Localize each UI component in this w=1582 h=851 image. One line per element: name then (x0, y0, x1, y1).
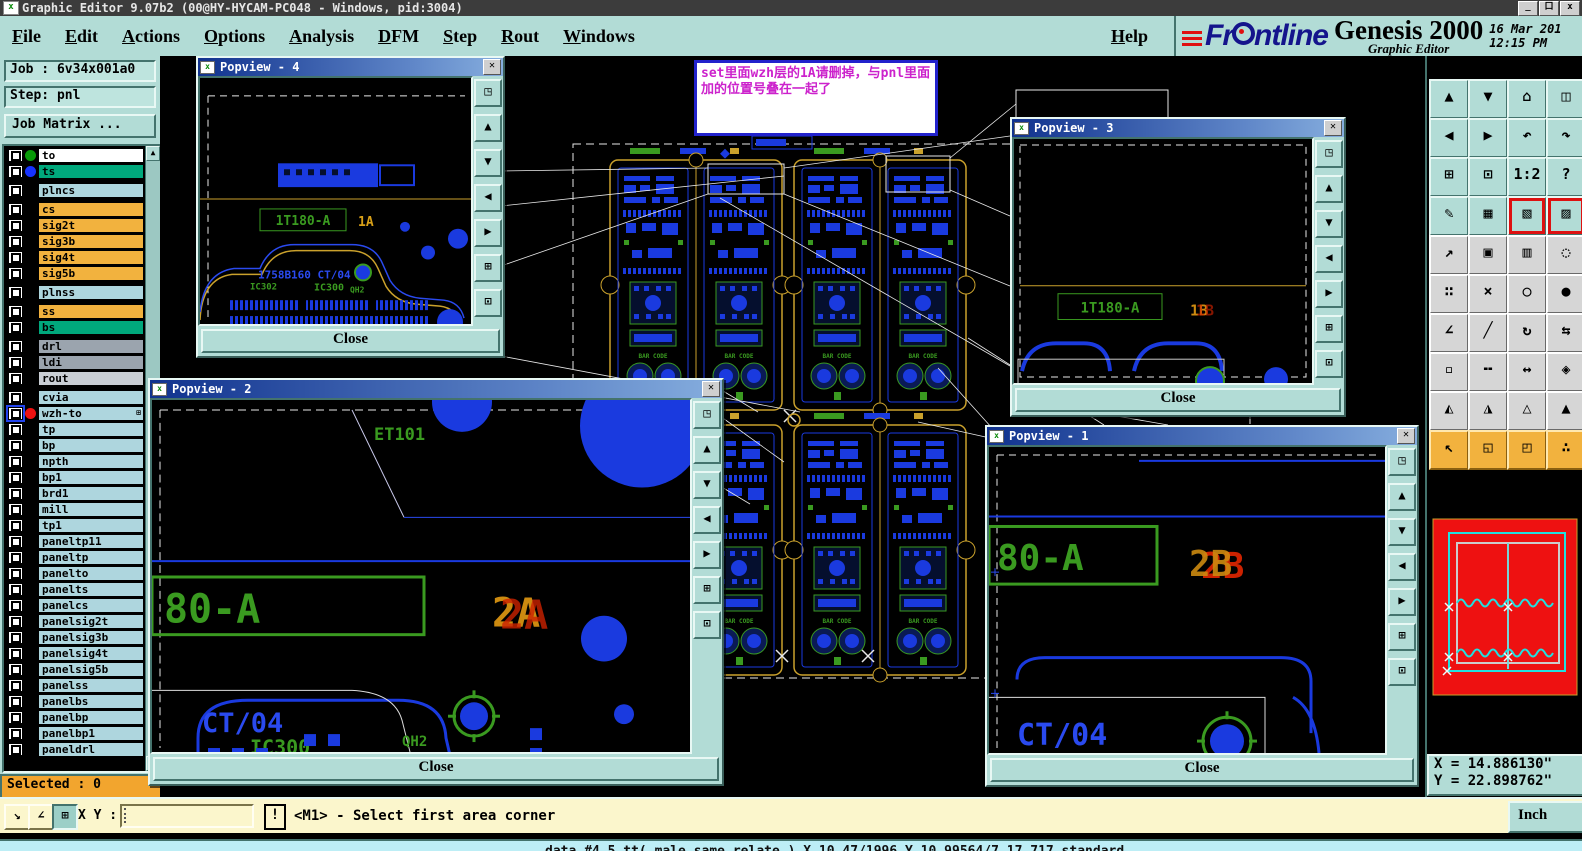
layer-name: panelsig2t (38, 614, 144, 629)
layer-row-tp[interactable]: tp (6, 422, 144, 436)
layer-checkbox[interactable] (8, 439, 23, 452)
layer-name: panelsig4t (38, 646, 144, 661)
tool-pad-mode-button[interactable]: ▫ (1429, 352, 1469, 392)
layer-checkbox[interactable] (8, 423, 23, 436)
popview-3-window: x Popview - 3 ✕ 1T180-A 1B 1B (1010, 117, 1346, 417)
popview-2-window: x Popview - 2 ✕ ET101 (148, 378, 724, 786)
units-selector[interactable]: Inch (1508, 801, 1582, 833)
tool-move-up-b-button[interactable]: ◮ (1468, 391, 1508, 431)
menu-options[interactable]: Options (204, 26, 265, 47)
layer-color-dot (25, 520, 36, 531)
layer-name: panelss (38, 678, 144, 693)
center-view-icon[interactable]: ⊡ (1388, 658, 1416, 686)
zoom-in-icon[interactable]: ▲ (1315, 175, 1343, 203)
popview-3-title: Popview - 3 (1034, 121, 1113, 135)
layer-color-dot (25, 287, 36, 298)
layer-color-dot (25, 204, 36, 215)
popout-icon[interactable]: ◳ (1315, 140, 1343, 168)
measure-angle-icon[interactable]: ∠ (28, 804, 54, 830)
bottom-toolbar: ↘ ∠ ⊞ X Y : ! <M1> - Select first area c… (0, 797, 1582, 833)
popout-icon[interactable]: ◳ (1388, 448, 1416, 476)
tool-gap-measure-button[interactable]: ↔ (1507, 352, 1547, 392)
menu-windows[interactable]: Windows (563, 26, 635, 47)
layer-color-dot (25, 536, 36, 547)
popview-1-close-icon[interactable]: ✕ (1397, 428, 1415, 444)
popview-icon: x (989, 430, 1004, 443)
layer-checkbox[interactable] (8, 487, 23, 500)
layer-row-mill[interactable]: mill (6, 502, 144, 516)
close-window-button[interactable]: x (1560, 1, 1580, 16)
layer-name: bs (38, 320, 144, 335)
window-title: Graphic Editor 9.07b2 (00@HY-HYCAM-PC048… (22, 1, 463, 15)
popout-icon[interactable]: ◳ (693, 401, 721, 429)
menu-file[interactable]: File (12, 26, 41, 47)
right-tool-panel: ▲▼⌂◫◀▶↶↷⊞⊡1:2?✎▦▧▨↗▣▥◌∷×○●∠╱↻⇆▫╍↔◈◭◮△▲↖◱… (1425, 56, 1582, 797)
datetime: 16 Mar 201 12:15 PM (1489, 22, 1561, 50)
frontline-logo: Frntline (1205, 19, 1328, 53)
layer-checkbox[interactable] (8, 711, 23, 724)
coord-y: Y = 22.898762" (1434, 773, 1582, 790)
layer-name: to (38, 148, 144, 163)
menu-help[interactable]: Help (1111, 26, 1148, 47)
popview-2-title: Popview - 2 (172, 382, 251, 396)
layer-name: panelbp (38, 710, 144, 725)
layer-row-panelbs[interactable]: panelbs (6, 694, 144, 708)
zoom-in-icon[interactable]: ▲ (474, 114, 502, 142)
popview-4-title: Popview - 4 (220, 60, 299, 74)
layer-row-ldi[interactable]: ldi (6, 355, 144, 369)
layer-name: brd1 (38, 486, 144, 501)
popview-1-titlebar[interactable]: x Popview - 1 ✕ (987, 427, 1417, 445)
layer-name: tp1 (38, 518, 144, 533)
zoom-out-icon[interactable]: ▼ (1388, 518, 1416, 546)
popview-icon: x (152, 383, 167, 396)
layer-color-dot (25, 712, 36, 723)
tool-move-up-a-button[interactable]: ◭ (1429, 391, 1469, 431)
layer-color-dot (25, 616, 36, 627)
popout-icon[interactable]: ◳ (474, 79, 502, 107)
layer-row-ss[interactable]: ss (6, 304, 144, 318)
tool-previous-view-button[interactable]: ↶ (1507, 118, 1547, 158)
tool-next-view-button[interactable]: ↷ (1546, 118, 1582, 158)
layer-checkbox[interactable] (8, 219, 23, 232)
tool-select-area-button[interactable]: ◌ (1546, 235, 1582, 275)
tool-net-nodes-button[interactable]: ∷ (1429, 274, 1469, 314)
layer-color-dot (25, 306, 36, 317)
popview-icon: x (1014, 122, 1029, 135)
layer-panel: totsplncscssig2tsig3bsig4tsig5bplnssssbs… (2, 144, 162, 773)
pv4-ic300-text: IC300 (314, 282, 344, 293)
popview-1-window: x Popview - 1 ✕ 80-A 2B 2B (985, 425, 1419, 787)
fit-view-icon[interactable]: ⊞ (1315, 315, 1343, 343)
layer-row-brd1[interactable]: brd1 (6, 486, 144, 500)
menu-rout[interactable]: Rout (501, 26, 539, 47)
layer-color-dot (25, 680, 36, 691)
layer-row-panelbp[interactable]: panelbp (6, 710, 144, 724)
pv2-et-text: ET101 (374, 424, 425, 444)
measure-distance-icon[interactable]: ↘ (4, 804, 30, 830)
menu-analysis[interactable]: Analysis (289, 26, 354, 47)
tool-grid-toggle-button[interactable]: ▦ (1468, 196, 1508, 236)
tool-layer-stoplight-button[interactable]: ▧ (1507, 196, 1547, 236)
layer-checkbox[interactable] (8, 305, 23, 318)
zoom-out-icon[interactable]: ▼ (693, 471, 721, 499)
pv4-ref-text: 1T180-A (276, 214, 331, 229)
tool-pan-right-button[interactable]: ▶ (1468, 118, 1508, 158)
center-view-icon[interactable]: ⊡ (693, 611, 721, 639)
job-matrix-button[interactable]: Job Matrix ... (4, 114, 156, 138)
layer-color-dot (25, 373, 36, 384)
layer-name: panelsig5b (38, 662, 144, 677)
pan-left-icon[interactable]: ◀ (693, 506, 721, 534)
layer-row-panelsig2t[interactable]: panelsig2t (6, 614, 144, 628)
popview-4-window: x Popview - 4 ✕ (196, 56, 505, 358)
layer-checkbox[interactable] (8, 647, 23, 660)
brand-panel: Frntline Genesis 2000 Graphic Editor 16 … (1174, 16, 1582, 56)
layer-row-tp1[interactable]: tp1 (6, 518, 144, 532)
prompt-message: <M1> - Select first area corner (294, 808, 555, 824)
layer-color-dot (25, 728, 36, 739)
layer-checkbox[interactable] (8, 286, 23, 299)
layer-checkbox[interactable] (8, 251, 23, 264)
layer-name: paneldrl (38, 742, 144, 757)
tool-copy-frame-button[interactable]: ▣ (1468, 235, 1508, 275)
center-view-icon[interactable]: ⊡ (474, 289, 502, 317)
tool-copy-point-button[interactable]: ● (1546, 274, 1582, 314)
popview-2-close-icon[interactable]: ✕ (702, 381, 720, 397)
tool-setup-tools-button[interactable]: ✎ (1429, 196, 1469, 236)
layer-checkbox[interactable] (8, 663, 23, 676)
layer-name: mill (38, 502, 144, 517)
cursor-coordinates: X = 14.886130" Y = 22.898762" (1427, 754, 1582, 796)
layer-color-dot (25, 472, 36, 483)
layer-checkbox[interactable] (8, 631, 23, 644)
tool-delete-mode-button[interactable]: × (1468, 274, 1508, 314)
layer-color-dot (25, 440, 36, 451)
layer-row-panelsig4t[interactable]: panelsig4t (6, 646, 144, 660)
layer-name: panelts (38, 582, 144, 597)
layer-row-sig4t[interactable]: sig4t (6, 250, 144, 264)
layer-color-dot (25, 220, 36, 231)
pv2-qh-text: QH2 (402, 734, 427, 750)
layer-name: cs (38, 202, 144, 217)
tool-measure-ruler-button[interactable]: ▥ (1507, 235, 1547, 275)
zoom-in-icon[interactable]: ▲ (1388, 483, 1416, 511)
pv1-ct-text: CT/04 (1017, 718, 1107, 753)
layer-color-dot (25, 341, 36, 352)
layer-row-panelcs[interactable]: panelcs (6, 598, 144, 612)
layer-checkbox[interactable] (8, 599, 23, 612)
popview-4-close-button[interactable]: Close (201, 329, 500, 353)
popview-3-close-button[interactable]: Close (1015, 388, 1341, 412)
layer-checkbox[interactable] (8, 356, 23, 369)
layer-checkbox[interactable] (8, 743, 23, 756)
layer-row-panelbp1[interactable]: panelbp1 (6, 726, 144, 740)
layer-name: sig3b (38, 234, 144, 249)
scroll-up-icon[interactable]: ▲ (146, 146, 160, 161)
layer-row-cs[interactable]: cs (6, 202, 144, 216)
popview-3-close-icon[interactable]: ✕ (1324, 120, 1342, 136)
layer-row-cvia[interactable]: cvia (6, 390, 144, 404)
bottom-status-strip: data #4 5 tt( male same relate ) X 10.47… (0, 839, 1582, 851)
layer-color-dot (25, 744, 36, 755)
layer-name: panelto (38, 566, 144, 581)
layer-name: drl (38, 339, 144, 354)
layer-checkbox[interactable] (8, 567, 23, 580)
tool-shape-mode-button[interactable]: ◈ (1546, 352, 1582, 392)
layer-row-plnss[interactable]: plnss (6, 285, 144, 299)
layer-row-panelts[interactable]: panelts (6, 582, 144, 596)
main-canvas[interactable]: BAR CODE (160, 56, 1425, 797)
xy-label: X Y : (78, 808, 117, 823)
zoom-in-icon[interactable]: ▲ (693, 436, 721, 464)
tool-line-mode-button[interactable]: ╱ (1468, 313, 1508, 353)
product-name: Genesis 2000 (1334, 17, 1483, 43)
layer-color-dot (25, 357, 36, 368)
layer-checkbox[interactable] (8, 615, 23, 628)
layer-row-panelsig5b[interactable]: panelsig5b (6, 662, 144, 676)
tool-move-up-c-button[interactable]: △ (1507, 391, 1547, 431)
tool-home-view-button[interactable]: ⌂ (1507, 79, 1547, 119)
tool-zoom-ratio-1-2-button[interactable]: 1:2 (1507, 157, 1547, 197)
pv3-ref-text: 1T180-A (1081, 301, 1141, 317)
popview-1-title: Popview - 1 (1009, 429, 1088, 443)
layer-checkbox[interactable] (8, 165, 23, 178)
zoom-out-icon[interactable]: ▼ (1315, 210, 1343, 238)
layer-row-bs[interactable]: bs (6, 320, 144, 334)
pv1-ref-text: 80-A (997, 538, 1084, 579)
popview-4-titlebar[interactable]: x Popview - 4 ✕ (198, 58, 503, 76)
pv4-qh2-text: QH2 (350, 285, 365, 294)
pan-right-icon[interactable]: ▶ (474, 219, 502, 247)
layer-row-ts[interactable]: ts (6, 164, 144, 178)
menu-edit[interactable]: Edit (65, 26, 98, 47)
tool-fit-all-button[interactable]: ⊞ (1429, 157, 1469, 197)
layer-checkbox[interactable] (8, 235, 23, 248)
layer-color-dot (25, 166, 36, 177)
layer-name: panelbs (38, 694, 144, 709)
window-titlebar[interactable]: x Graphic Editor 9.07b2 (00@HY-HYCAM-PC0… (0, 0, 1582, 16)
application-window: x Graphic Editor 9.07b2 (00@HY-HYCAM-PC0… (0, 0, 1582, 851)
layer-color-dot (25, 664, 36, 675)
fit-view-icon[interactable]: ⊞ (474, 254, 502, 282)
tool-width-mode-button[interactable]: ╍ (1468, 352, 1508, 392)
layer-row-plncs[interactable]: plncs (6, 183, 144, 197)
layer-row-sig2t[interactable]: sig2t (6, 218, 144, 232)
tool-center-view-button[interactable]: ⊡ (1468, 157, 1508, 197)
tool-move-point-button[interactable]: ○ (1507, 274, 1547, 314)
frontline-stripes-icon (1182, 31, 1202, 34)
layer-checkbox[interactable] (8, 679, 23, 692)
layer-row-paneltp[interactable]: paneltp (6, 550, 144, 564)
zoom-out-icon[interactable]: ▼ (474, 149, 502, 177)
popview-1-close-button[interactable]: Close (990, 758, 1414, 782)
app-icon: x (3, 1, 19, 15)
layer-checkbox[interactable] (8, 551, 23, 564)
layer-row-wzh-to[interactable]: wzh-to⊞ (6, 406, 144, 420)
layer-name: wzh-to⊞ (38, 406, 144, 421)
pv1-pos-text: 2B (1189, 544, 1232, 585)
layer-checkbox[interactable] (8, 519, 23, 532)
popview-3-viewport[interactable]: 1T180-A 1B 1B (1012, 137, 1314, 385)
layer-name: plnss (38, 285, 144, 300)
coord-x: X = 14.886130" (1434, 756, 1582, 773)
layer-row-sig3b[interactable]: sig3b (6, 234, 144, 248)
center-view-icon[interactable]: ⊡ (1315, 350, 1343, 378)
tool-select-rectangle-button[interactable]: ◱ (1468, 430, 1508, 470)
fit-view-icon[interactable]: ⊞ (1388, 623, 1416, 651)
layer-name: bp1 (38, 470, 144, 485)
pv4-ic302-text: IC302 (250, 282, 277, 292)
layer-checkbox[interactable] (8, 321, 23, 334)
bottom-strip-text: data #4 5 tt( male same relate ) X 10.47… (545, 844, 1124, 851)
layer-row-panelto[interactable]: panelto (6, 566, 144, 580)
job-label: Job : 6v34x001a0 (4, 60, 156, 82)
layer-checkbox[interactable] (8, 267, 23, 280)
layer-checkbox[interactable] (8, 503, 23, 516)
layer-color-dot (25, 408, 36, 419)
fit-view-icon[interactable]: ⊞ (693, 576, 721, 604)
layer-name: cvia (38, 390, 144, 405)
tool-select-polygon-button[interactable]: ◰ (1507, 430, 1547, 470)
popview-2-titlebar[interactable]: x Popview - 2 ✕ (150, 380, 722, 398)
tool-grid: ▲▼⌂◫◀▶↶↷⊞⊡1:2?✎▦▧▨↗▣▥◌∷×○●∠╱↻⇆▫╍↔◈◭◮△▲↖◱… (1428, 78, 1582, 468)
pan-left-icon[interactable]: ◀ (474, 184, 502, 212)
layer-color-dot (25, 150, 36, 161)
layer-row-drl[interactable]: drl (6, 339, 144, 353)
layer-color-dot (25, 185, 36, 196)
layer-checkbox[interactable] (8, 203, 23, 216)
layer-color-dot (25, 696, 36, 707)
layer-name: ss (38, 304, 144, 319)
tool-pan-left-button[interactable]: ◀ (1429, 118, 1469, 158)
layer-color-dot (25, 392, 36, 403)
popview-3-toolcol: ◳▲▼◀▶⊞⊡ (1314, 137, 1344, 385)
layer-name: ldi (38, 355, 144, 370)
layer-color-dot (25, 648, 36, 659)
layer-color-dot (25, 322, 36, 333)
pan-right-icon[interactable]: ▶ (1315, 280, 1343, 308)
layer-row-npth[interactable]: npth (6, 454, 144, 468)
layer-row-sig5b[interactable]: sig5b (6, 266, 144, 280)
menu-step[interactable]: Step (443, 26, 477, 47)
menu-dfm[interactable]: DFM (378, 26, 419, 47)
xy-input[interactable] (120, 804, 254, 828)
tool-context-help-button[interactable]: ? (1546, 157, 1582, 197)
pv4-pos-text: 1A (358, 215, 374, 230)
layer-row-to[interactable]: to (6, 148, 144, 162)
layer-name: sig4t (38, 250, 144, 265)
layer-name: paneltp11 (38, 534, 144, 549)
quad-view-icon[interactable]: ⊞ (52, 804, 78, 830)
popview-2-toolcol: ◳▲▼◀▶⊞⊡ (692, 398, 722, 754)
pan-right-icon[interactable]: ▶ (1388, 588, 1416, 616)
layer-name: panelsig3b (38, 630, 144, 645)
popview-4-viewport[interactable]: 1T180-A 1A 1758B160 CT/04 IC302 IC300 QH… (198, 76, 473, 326)
popview-2-viewport[interactable]: ET101 80-A 2A 2A CT/04 IC300 QH2 (150, 398, 692, 754)
popview-4-toolcol: ◳▲▼◀▶⊞⊡ (473, 76, 503, 326)
layer-row-panelss[interactable]: panelss (6, 678, 144, 692)
tool-rotate-mode-button[interactable]: ↻ (1507, 313, 1547, 353)
layer-checkbox[interactable] (8, 695, 23, 708)
layer-checkbox[interactable] (8, 184, 23, 197)
layer-color-dot (25, 456, 36, 467)
maximize-button[interactable]: 口 (1539, 1, 1559, 16)
minimize-button[interactable]: _ (1518, 1, 1538, 16)
alert-button[interactable]: ! (264, 804, 286, 830)
layer-row-bp1[interactable]: bp1 (6, 470, 144, 484)
layer-checkbox[interactable] (8, 340, 23, 353)
layer-name: tp (38, 422, 144, 437)
tool-layer-display-button[interactable]: ▨ (1546, 196, 1582, 236)
pan-right-icon[interactable]: ▶ (693, 541, 721, 569)
layer-name: sig5b (38, 266, 144, 281)
panel-navigator[interactable] (1431, 511, 1581, 725)
tool-angle-mode-button[interactable]: ∠ (1429, 313, 1469, 353)
layer-row-paneldrl[interactable]: paneldrl (6, 742, 144, 756)
layer-name: rout (38, 371, 144, 386)
layer-checkbox[interactable] (8, 455, 23, 468)
layer-checkbox[interactable] (8, 407, 23, 420)
pv4-part-text: 1758B160 CT/04 (258, 268, 351, 281)
layer-color-dot (25, 424, 36, 435)
layer-color-dot (25, 504, 36, 515)
pan-left-icon[interactable]: ◀ (1388, 553, 1416, 581)
layer-name: bp (38, 438, 144, 453)
menu-actions[interactable]: Actions (122, 26, 180, 47)
tool-view-zoom-in-button[interactable]: ▲ (1429, 79, 1469, 119)
popview-4-close-icon[interactable]: ✕ (483, 59, 501, 75)
pv3-pos-overlap-text: 1B (1196, 302, 1214, 320)
layer-checkbox[interactable] (8, 471, 23, 484)
layer-row-rout[interactable]: rout (6, 371, 144, 385)
layer-checkbox[interactable] (8, 583, 23, 596)
layer-badge-icon: ⊞ (136, 408, 141, 418)
pv2-pos-overlap-text: 2A (500, 593, 548, 639)
layer-row-paneltp11[interactable]: paneltp11 (6, 534, 144, 548)
tool-mirror-mode-button[interactable]: ⇆ (1546, 313, 1582, 353)
layer-list: totsplncscssig2tsig3bsig4tsig5bplnssssbs… (4, 146, 145, 771)
layer-color-dot (25, 268, 36, 279)
layer-checkbox[interactable] (8, 149, 23, 162)
layer-color-dot (25, 584, 36, 595)
layer-checkbox[interactable] (8, 372, 23, 385)
layer-color-dot (25, 236, 36, 247)
tool-move-up-d-button[interactable]: ▲ (1546, 391, 1582, 431)
tool-select-reference-button[interactable]: ∴ (1546, 430, 1582, 470)
popview-3-titlebar[interactable]: x Popview - 3 ✕ (1012, 119, 1344, 137)
pan-left-icon[interactable]: ◀ (1315, 245, 1343, 273)
tool-view-zoom-out-button[interactable]: ▼ (1468, 79, 1508, 119)
layer-name: ts (38, 164, 144, 179)
layer-row-panelsig3b[interactable]: panelsig3b (6, 630, 144, 644)
layer-name: npth (38, 454, 144, 469)
layer-checkbox[interactable] (8, 391, 23, 404)
layer-name: paneltp (38, 550, 144, 565)
popview-2-close-button[interactable]: Close (153, 757, 719, 781)
layer-checkbox[interactable] (8, 535, 23, 548)
layer-name: plncs (38, 183, 144, 198)
layer-checkbox[interactable] (8, 727, 23, 740)
tool-split-view-button[interactable]: ◫ (1546, 79, 1582, 119)
layer-row-bp[interactable]: bp (6, 438, 144, 452)
tool-select-pointer-button[interactable]: ↖ (1429, 430, 1469, 470)
tool-transform-mode-button[interactable]: ↗ (1429, 235, 1469, 275)
layer-color-dot (25, 568, 36, 579)
popview-1-viewport[interactable]: 80-A 2B 2B CT/04 (987, 445, 1387, 755)
layer-color-dot (25, 252, 36, 263)
layer-name: sig2t (38, 218, 144, 233)
